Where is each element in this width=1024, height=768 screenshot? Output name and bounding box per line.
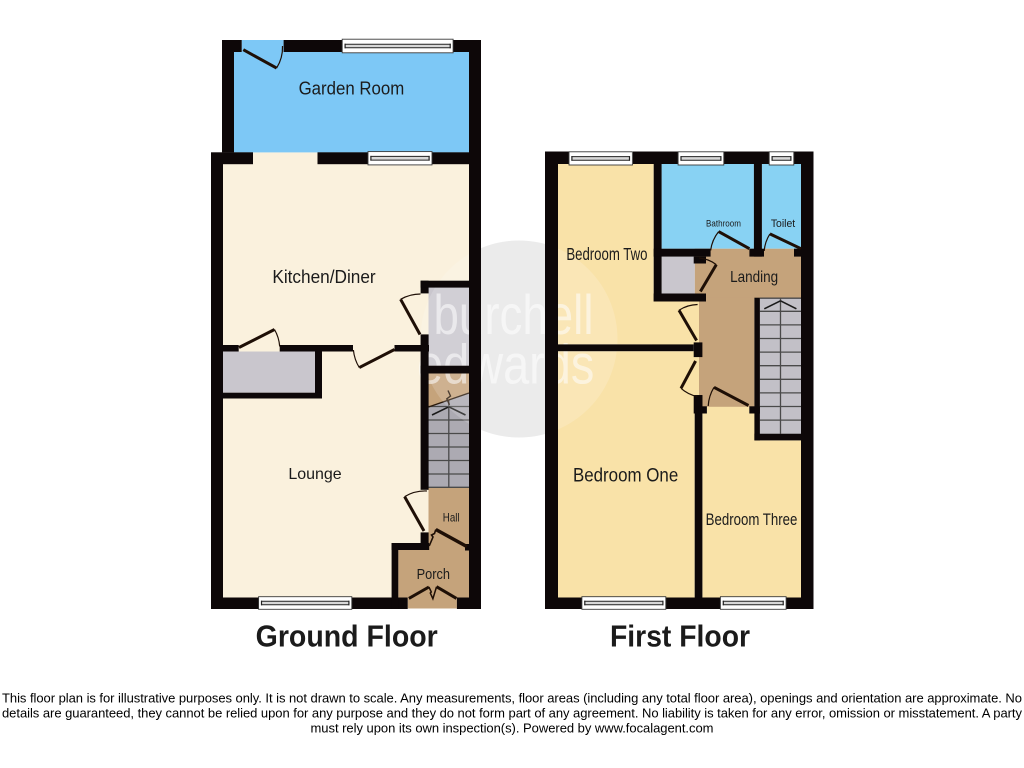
svg-text:Lounge: Lounge: [288, 466, 341, 483]
svg-text:Landing: Landing: [730, 269, 778, 286]
svg-text:Kitchen/Diner: Kitchen/Diner: [272, 266, 375, 287]
svg-text:must rely upon its own inspect: must rely upon its own inspection(s). Po…: [311, 721, 714, 736]
svg-text:This floor plan is for illustr: This floor plan is for illustrative purp…: [2, 691, 1022, 706]
svg-text:First Floor: First Floor: [610, 621, 750, 654]
svg-text:Toilet: Toilet: [771, 218, 795, 230]
svg-text:details are guaranteed, they c: details are guaranteed, they cannot be r…: [2, 706, 1023, 721]
svg-text:Garden Room: Garden Room: [299, 78, 405, 99]
svg-text:Bedroom Three: Bedroom Three: [706, 512, 798, 530]
svg-text:Bathroom: Bathroom: [706, 218, 741, 229]
svg-text:Bedroom One: Bedroom One: [573, 463, 678, 485]
svg-text:edwards: edwards: [417, 333, 594, 396]
svg-text:Porch: Porch: [417, 565, 450, 582]
svg-text:Bedroom Two: Bedroom Two: [566, 245, 647, 264]
svg-text:Ground Floor: Ground Floor: [256, 620, 438, 654]
svg-text:Hall: Hall: [443, 511, 460, 524]
